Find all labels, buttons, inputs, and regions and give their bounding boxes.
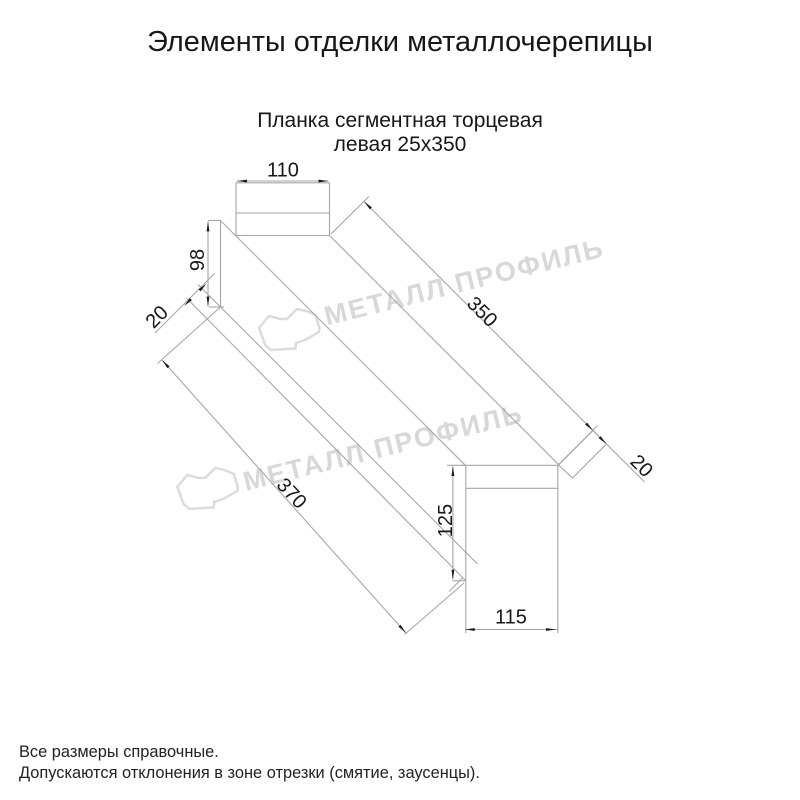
svg-text:350: 350 — [462, 293, 501, 332]
svg-text:МЕТАЛЛ ПРОФИЛЬ: МЕТАЛЛ ПРОФИЛЬ — [321, 233, 607, 332]
svg-text:98: 98 — [187, 249, 209, 271]
svg-text:125: 125 — [435, 504, 457, 537]
svg-text:115: 115 — [495, 607, 527, 629]
svg-text:110: 110 — [267, 160, 299, 182]
svg-text:20: 20 — [626, 451, 657, 482]
svg-text:20: 20 — [142, 302, 173, 333]
